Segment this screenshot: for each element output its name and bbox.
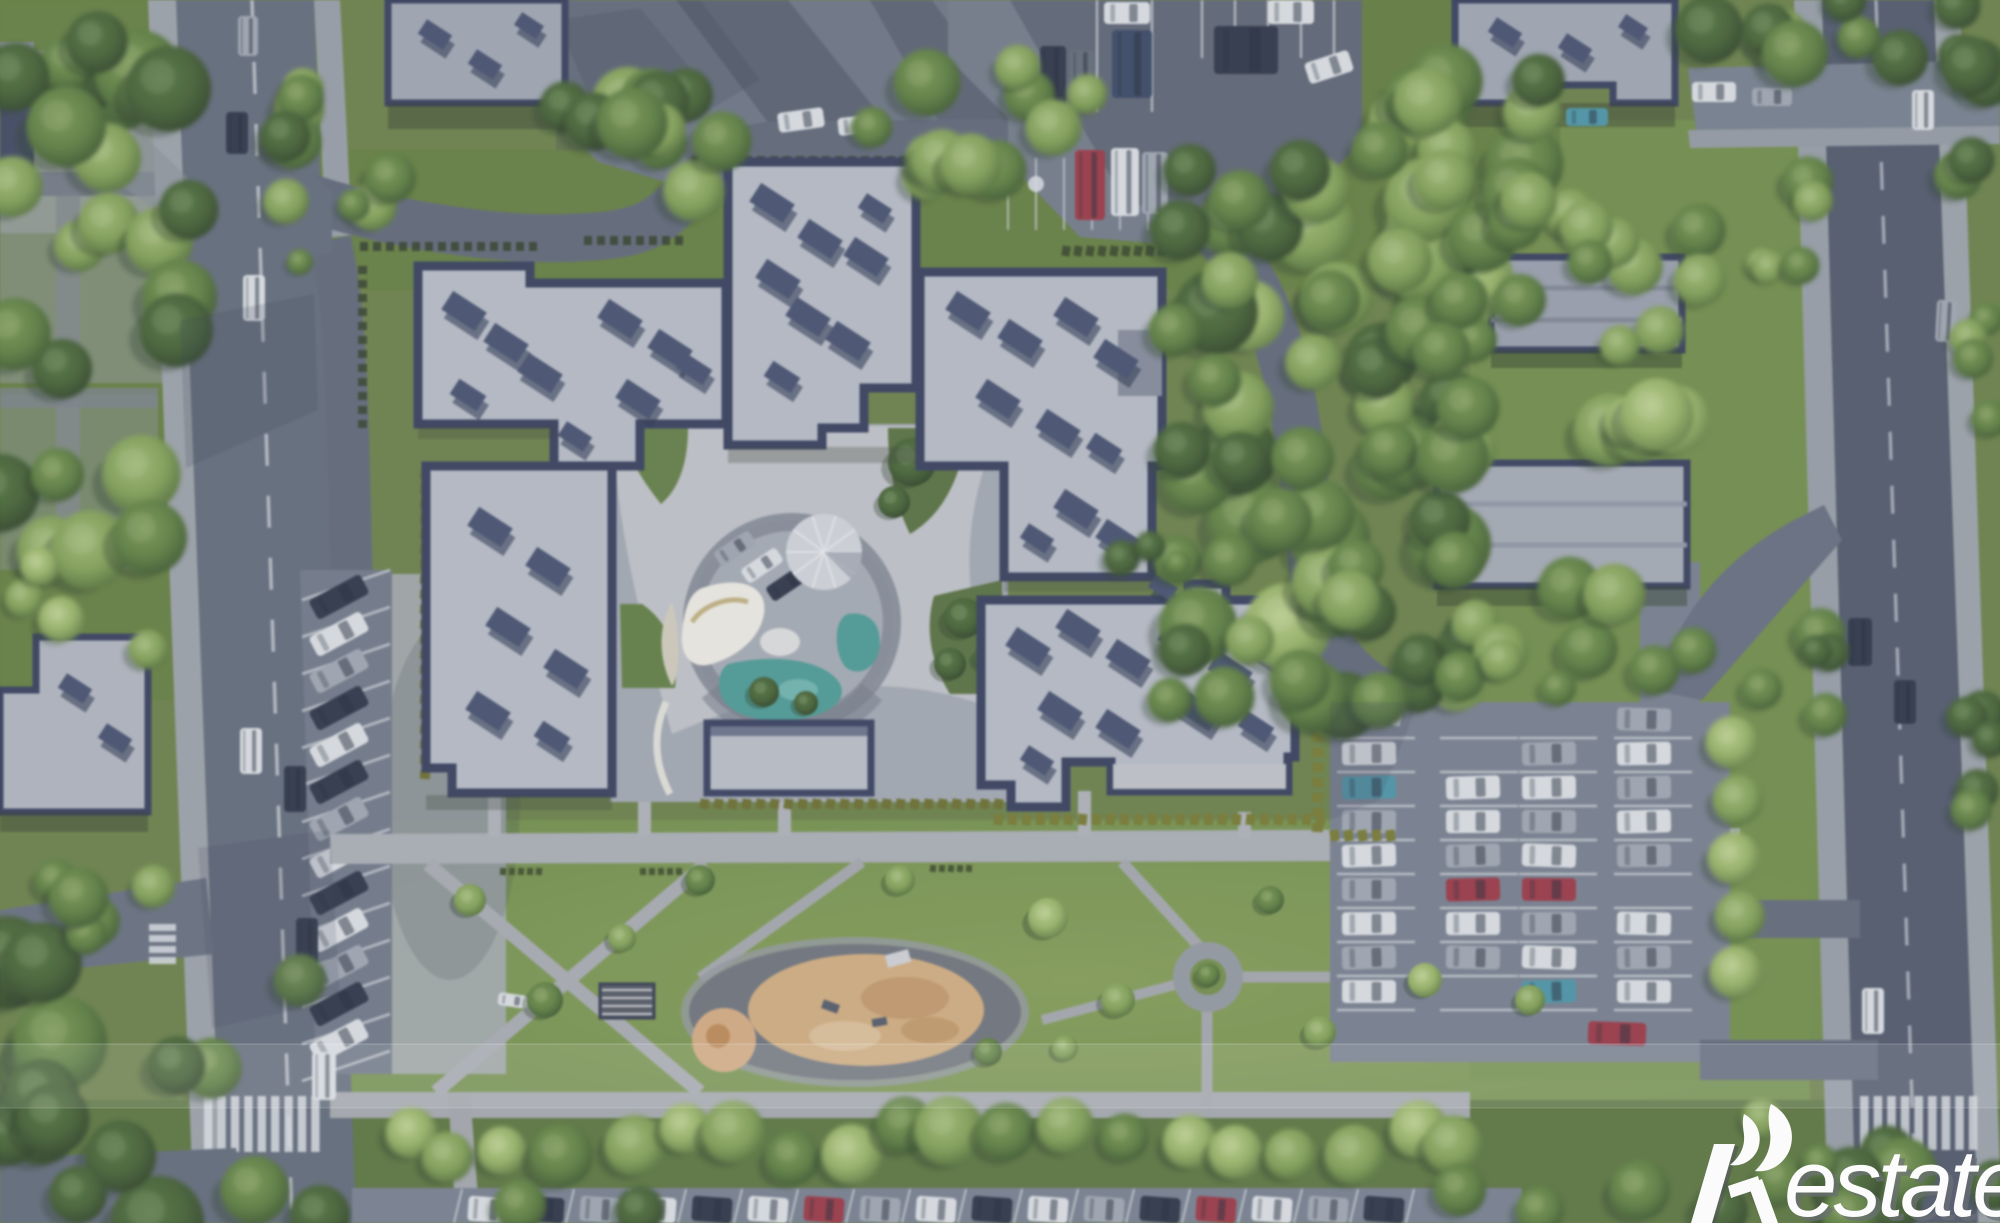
svg-text:estate: estate [1784, 1130, 2000, 1223]
